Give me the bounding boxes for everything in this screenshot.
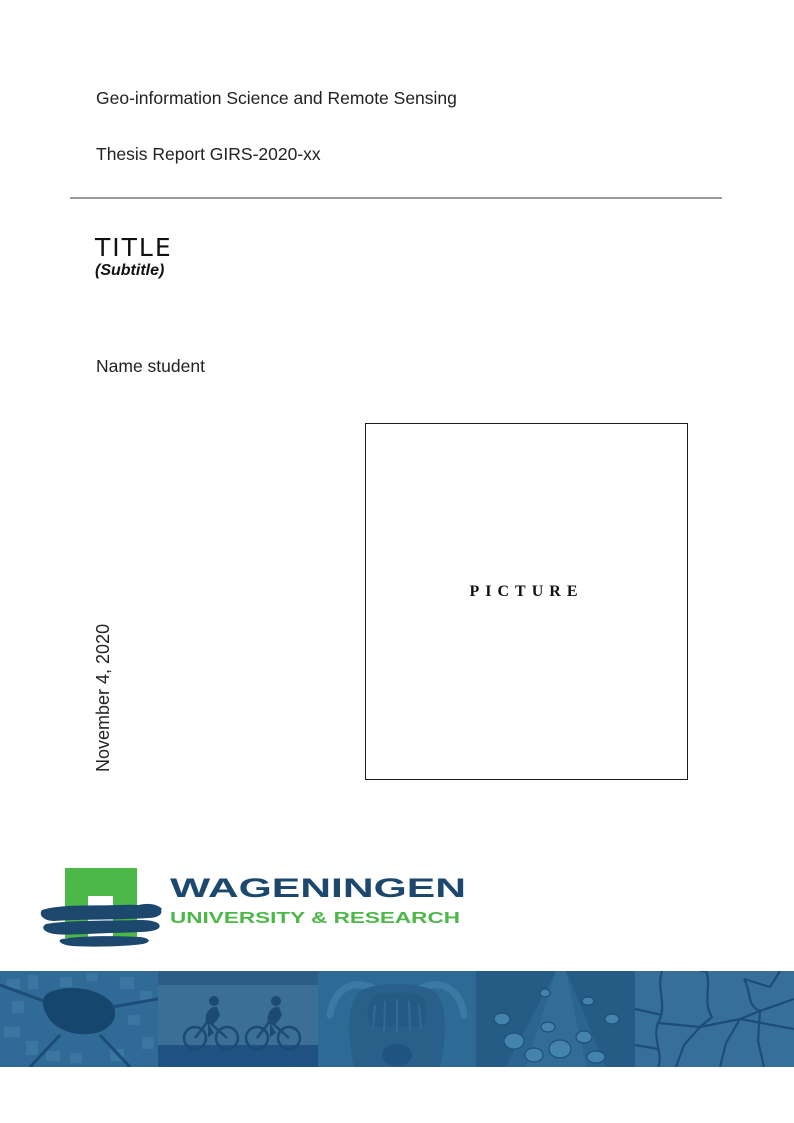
picture-placeholder-label: PICTURE (469, 583, 583, 601)
banner-image-highland-cow (318, 971, 476, 1067)
footer-banner (0, 971, 794, 1067)
logo-wordmark: WAGENINGEN (170, 873, 466, 903)
banner-image-aerial-map (0, 971, 158, 1067)
logo-tagline: UNIVERSITY & RESEARCH (170, 910, 460, 927)
logo-brush-icon (41, 904, 162, 947)
author-name: Name student (96, 356, 205, 377)
divider-rule (70, 197, 722, 199)
banner-image-cracked-earth (635, 971, 794, 1067)
page-title: TITLE (95, 233, 173, 262)
picture-placeholder-frame: PICTURE (365, 423, 688, 780)
page-subtitle: (Subtitle) (95, 262, 164, 280)
date-vertical: November 4, 2020 (93, 624, 114, 772)
thesis-cover-page: Geo-information Science and Remote Sensi… (0, 0, 794, 1123)
report-id-line: Thesis Report GIRS-2020-xx (96, 144, 321, 165)
banner-image-leaf-water-droplets (476, 971, 635, 1067)
banner-image-cyclists (158, 971, 318, 1067)
department-line: Geo-information Science and Remote Sensi… (96, 88, 457, 109)
wur-logo: WAGENINGEN UNIVERSITY & RESEARCH (40, 860, 480, 964)
